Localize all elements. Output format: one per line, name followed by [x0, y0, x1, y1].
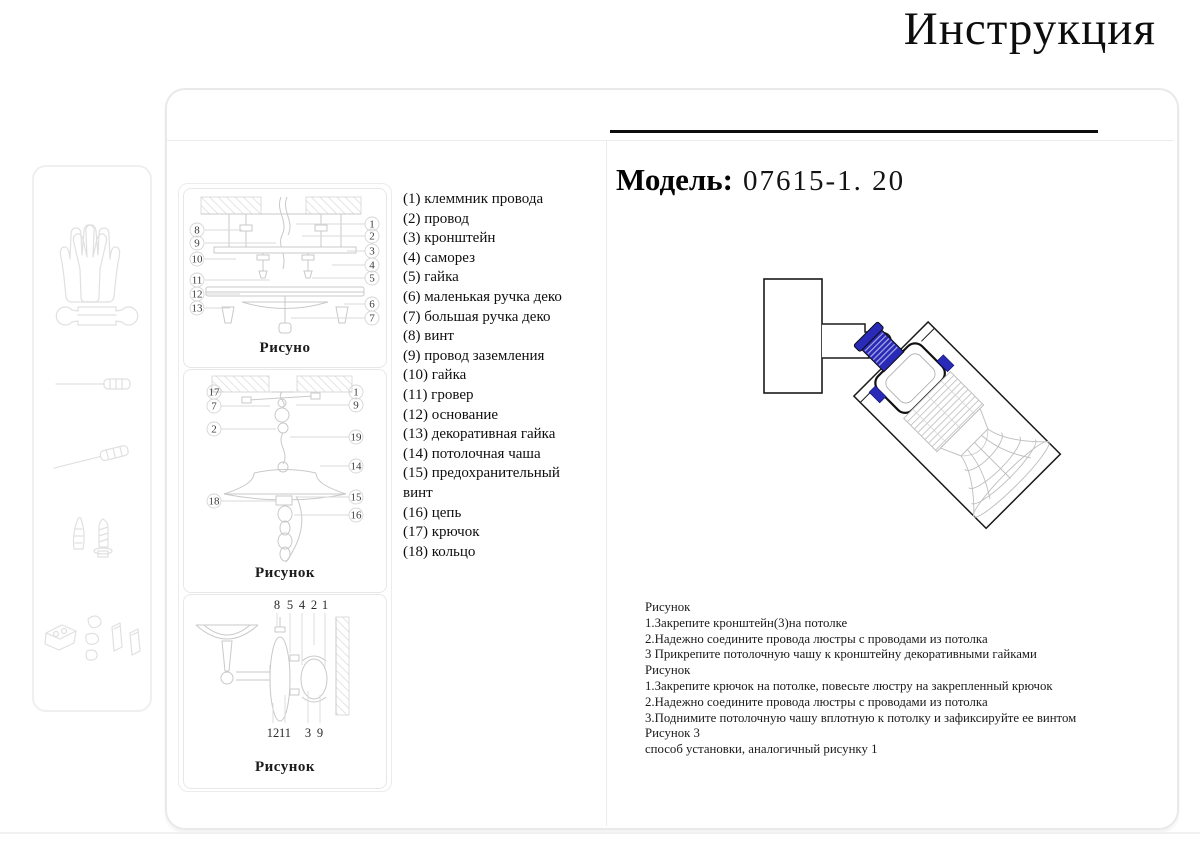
instruction-line: Рисунок 3: [645, 726, 1190, 742]
screw-anchor-icon: [74, 518, 113, 558]
toolbox-panel: [32, 165, 152, 712]
part-item: (12) основание: [403, 406, 591, 426]
wall-plate: [764, 279, 822, 393]
model-section-rule: [610, 130, 1098, 133]
callout-label: 9: [194, 238, 200, 250]
part-item: (10) гайка: [403, 366, 591, 386]
part-item: (18) кольцо: [403, 543, 591, 563]
callout-label: 17: [209, 387, 221, 399]
callout-label: 3: [369, 246, 375, 258]
model-header: Модель: 07615-1. 20: [616, 162, 905, 198]
horizontal-divider: [167, 140, 1174, 141]
part-item: (16) цепь: [403, 504, 591, 524]
callout-label: 8: [194, 225, 200, 237]
callout-label: 4: [369, 260, 375, 272]
callout-label: 12: [267, 726, 280, 740]
wrench-icon: [56, 307, 137, 325]
installation-instructions: Рисунок1.Закрепите кронштейн(3)на потолк…: [645, 600, 1190, 758]
instruction-line: 3 Прикрепите потолочную чашу к кронштейн…: [645, 647, 1190, 663]
figure-2-caption: Рисунок: [184, 565, 386, 582]
part-item: (9) провод заземления: [403, 347, 591, 367]
toolbox-icons: [34, 167, 146, 706]
callout-label: 15: [351, 492, 363, 504]
hardware-parts-icon: [45, 616, 140, 660]
callout-label: 14: [351, 461, 363, 473]
callout-label: 1: [322, 598, 328, 612]
part-item: (15) предохранительный винт: [403, 464, 591, 503]
callout-label: 7: [211, 401, 217, 413]
callout-label: 13: [192, 303, 204, 315]
callout-label: 5: [369, 273, 375, 285]
callout-label: 12: [192, 289, 203, 301]
callout-label: 19: [351, 432, 363, 444]
instruction-line: 2.Надежно соедините провода люстры с про…: [645, 632, 1190, 648]
callout-label: 11: [192, 275, 203, 287]
part-item: (1) клеммник провода: [403, 190, 591, 210]
callout-label: 10: [192, 254, 204, 266]
instruction-line: 2.Надежно соедините провода люстры с про…: [645, 695, 1190, 711]
callout-label: 9: [317, 726, 323, 740]
part-item: (13) декоративная гайка: [403, 425, 591, 445]
callout-label: 8: [274, 598, 280, 612]
screwdriver-angled-icon: [53, 445, 129, 473]
figure-2-drawing: 17 7 2 18 1 9 19 14 15 16: [184, 370, 386, 566]
instruction-line: Рисунок: [645, 600, 1190, 616]
figure-2-box: 17 7 2 18 1 9 19 14 15 16 Рисунок: [183, 369, 387, 593]
part-item: (14) потолочная чаша: [403, 445, 591, 465]
figure-1-box: 8 9 10 11 12 13 1 2 3 4 5 6 7 Рисуно: [183, 188, 387, 368]
gloves-icon: [60, 225, 119, 302]
callout-label: 2: [211, 424, 217, 436]
parts-list: (1) клеммник провода(2) провод(3) кроншт…: [403, 190, 591, 562]
figure-1-caption: Рисуно: [184, 340, 386, 357]
model-number: 07615-1. 20: [743, 165, 905, 198]
callout-label: 2: [369, 231, 375, 243]
figure-3-caption: Рисунок: [184, 759, 386, 776]
screwdriver-icon: [56, 379, 130, 389]
callout-label: 11: [279, 726, 291, 740]
vertical-divider: [606, 141, 607, 826]
part-item: (5) гайка: [403, 268, 591, 288]
callout-label: 18: [209, 496, 221, 508]
callout-label: 5: [287, 598, 293, 612]
part-item: (11) гровер: [403, 386, 591, 406]
part-item: (3) кронштейн: [403, 229, 591, 249]
part-item: (8) винт: [403, 327, 591, 347]
callout-label: 16: [351, 510, 363, 522]
callout-label: 1: [353, 387, 359, 399]
part-item: (17) крючок: [403, 523, 591, 543]
model-label: Модель:: [616, 162, 733, 198]
figure-1-drawing: 8 9 10 11 12 13 1 2 3 4 5 6 7: [184, 189, 386, 339]
callout-label: 6: [369, 299, 375, 311]
callout-label: 7: [369, 313, 375, 325]
instruction-line: способ установки, аналогичный рисунку 1: [645, 742, 1190, 758]
part-item: (6) маленькая ручка деко: [403, 288, 591, 308]
part-item: (4) саморез: [403, 249, 591, 269]
page-bottom-shadow: [0, 832, 1200, 834]
instruction-page: Инструкция: [0, 0, 1200, 848]
part-item: (7) большая ручка деко: [403, 308, 591, 328]
instruction-line: 1.Закрепите кронштейн(3)на потолке: [645, 616, 1190, 632]
callout-label: 1: [369, 219, 375, 231]
lamp-technical-drawing: [615, 235, 1180, 555]
instruction-line: 1.Закрепите крючок на потолке, повесьте …: [645, 679, 1190, 695]
page-title: Инструкция: [904, 2, 1156, 56]
figure-3-box: 8 5 4 2 1 12 11 3 9 Рисунок: [183, 594, 387, 789]
callout-label: 3: [305, 726, 311, 740]
callout-label: 9: [353, 400, 359, 412]
part-item: (2) провод: [403, 210, 591, 230]
figure-3-drawing: 8 5 4 2 1 12 11 3 9: [184, 595, 386, 760]
figures-panel: 8 9 10 11 12 13 1 2 3 4 5 6 7 Рисуно: [178, 183, 392, 792]
instruction-line: Рисунок: [645, 663, 1190, 679]
instruction-line: 3.Поднимите потолочную чашу вплотную к п…: [645, 711, 1190, 727]
callout-label: 2: [311, 598, 317, 612]
callout-label: 4: [299, 598, 306, 612]
